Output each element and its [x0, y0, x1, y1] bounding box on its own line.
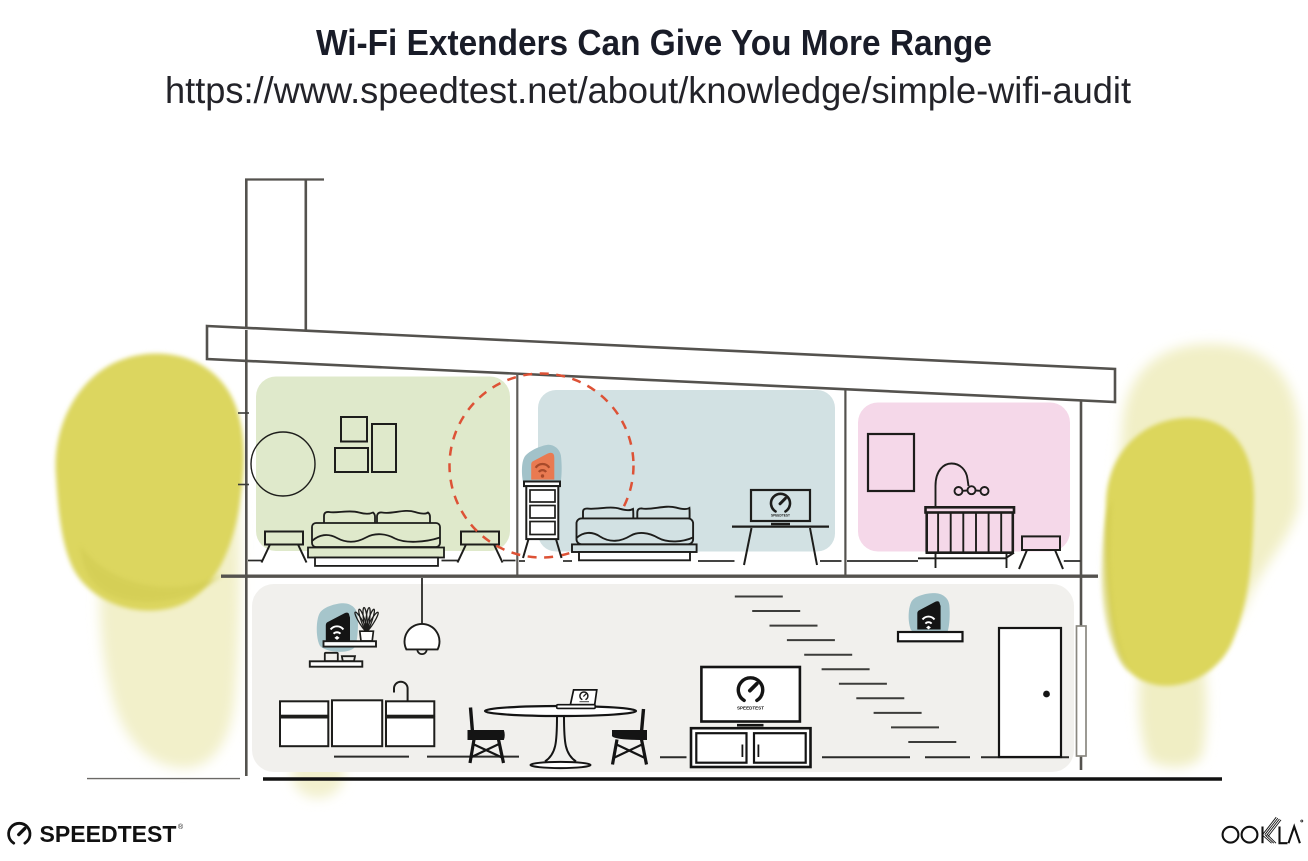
svg-text:SPEEDTEST: SPEEDTEST [771, 514, 791, 518]
svg-text:SPEEDTEST: SPEEDTEST [40, 821, 178, 847]
svg-text:https://www.speedtest.net/abou: https://www.speedtest.net/about/knowledg… [165, 70, 1132, 111]
svg-text:SPEEDTEST: SPEEDTEST [737, 706, 764, 711]
svg-text:Wi-Fi Extenders Can Give You M: Wi-Fi Extenders Can Give You More Range [316, 22, 992, 63]
svg-text:®: ® [178, 823, 184, 831]
